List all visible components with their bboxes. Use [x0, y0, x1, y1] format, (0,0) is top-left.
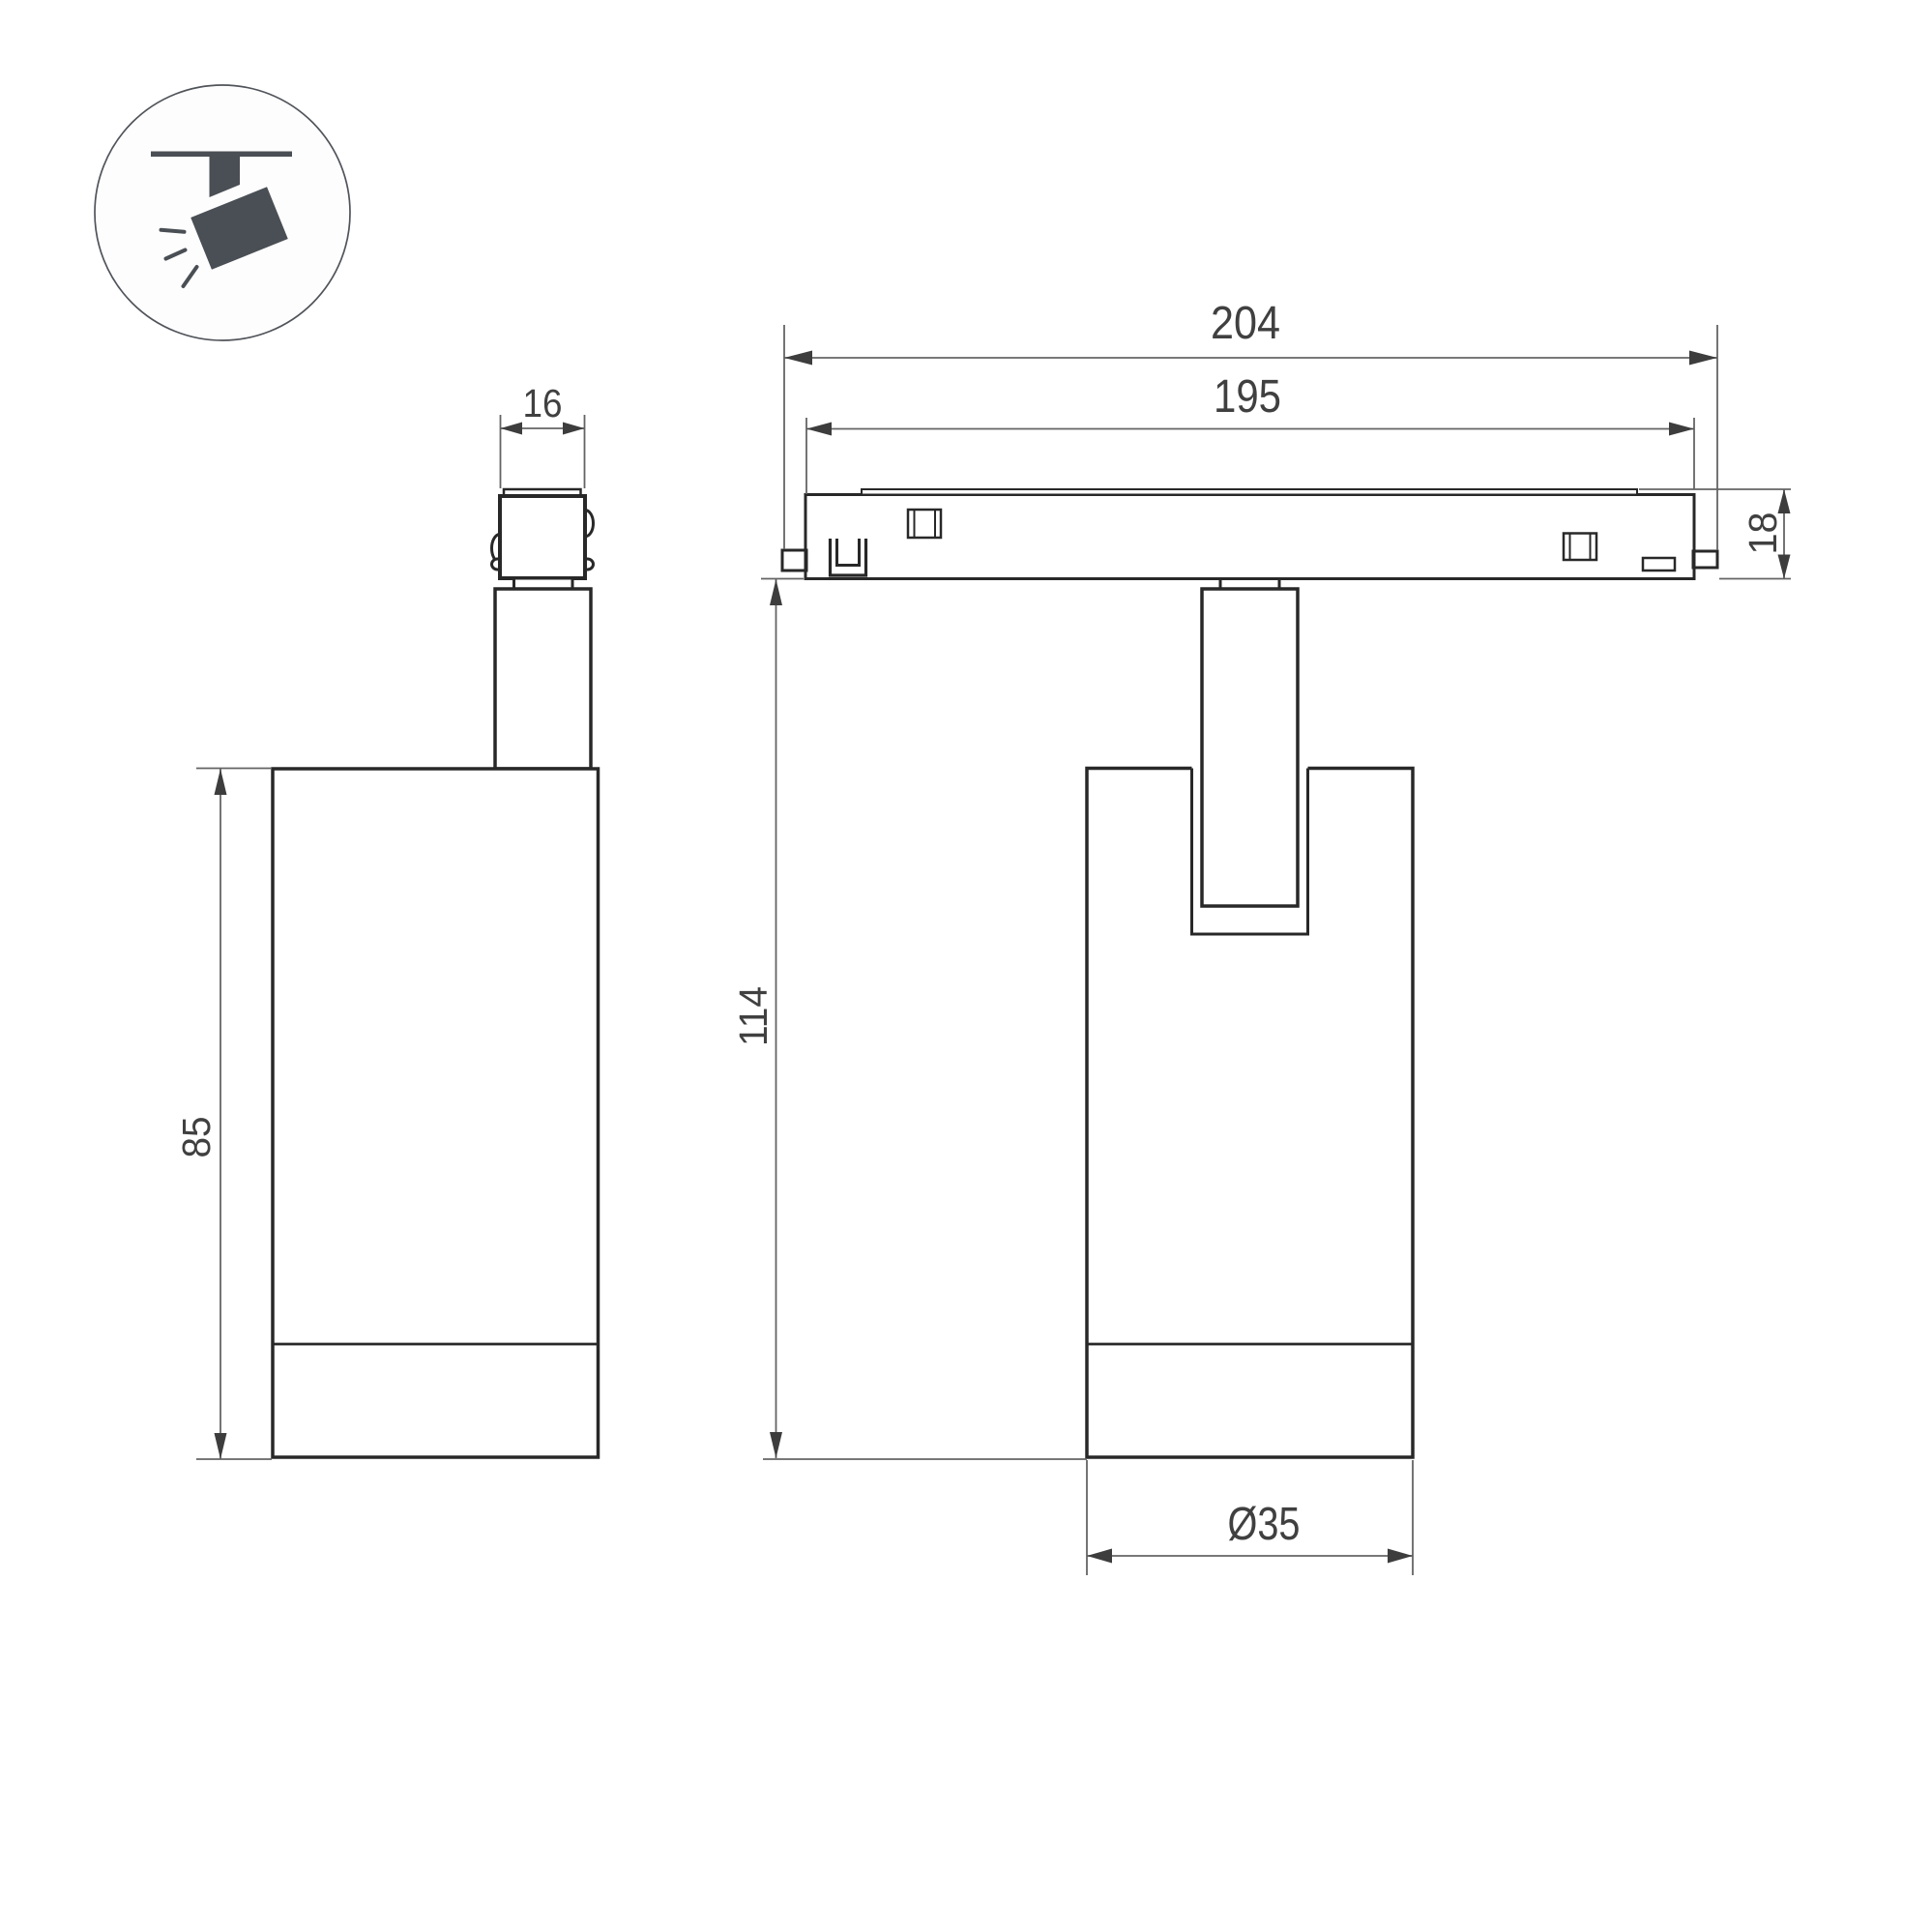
svg-text:16: 16	[523, 381, 563, 425]
svg-text:Ø35: Ø35	[1228, 1499, 1301, 1550]
svg-text:114: 114	[731, 986, 776, 1046]
svg-text:204: 204	[1211, 298, 1280, 349]
svg-text:85: 85	[174, 1117, 219, 1158]
svg-text:18: 18	[1741, 512, 1785, 555]
svg-text:195: 195	[1214, 371, 1281, 423]
